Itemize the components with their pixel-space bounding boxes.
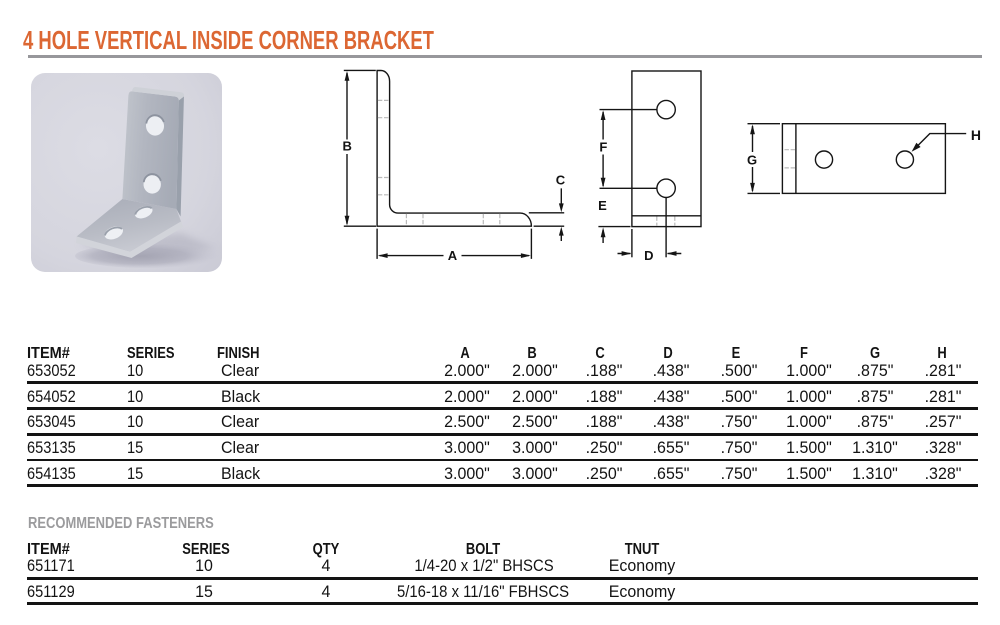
svg-text:E: E [598, 198, 607, 213]
svg-text:H: H [971, 127, 981, 143]
svg-text:B: B [343, 139, 352, 154]
svg-text:C: C [556, 173, 566, 188]
svg-text:G: G [747, 153, 757, 168]
svg-text:F: F [599, 140, 607, 155]
svg-text:A: A [448, 248, 458, 263]
svg-text:D: D [644, 248, 653, 263]
